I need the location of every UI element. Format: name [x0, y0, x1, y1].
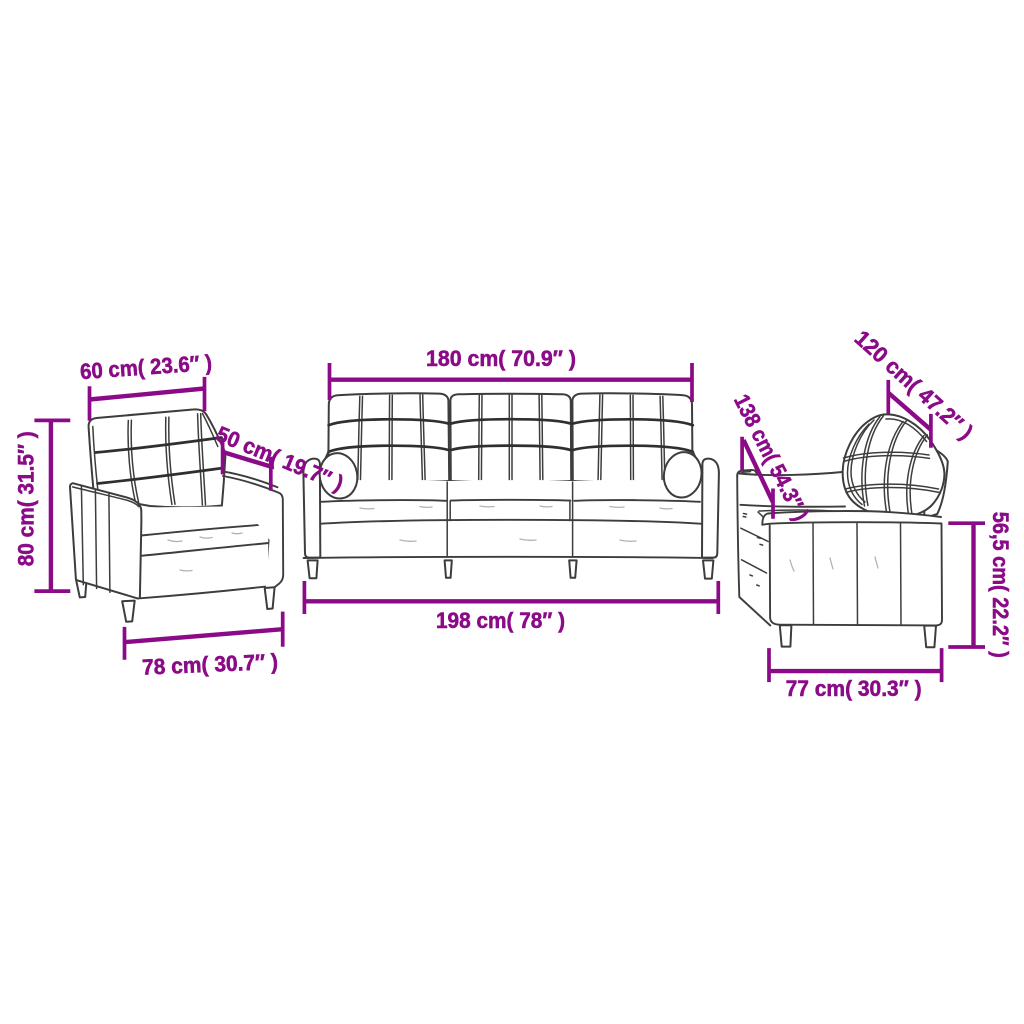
svg-text:56,5 cm( 22.2″ ): 56,5 cm( 22.2″ ): [988, 512, 1013, 658]
svg-text:77 cm( 30.3″ ): 77 cm( 30.3″ ): [786, 676, 922, 701]
svg-text:180 cm( 70.9″ ): 180 cm( 70.9″ ): [426, 346, 576, 371]
svg-text:80 cm( 31.5″ ): 80 cm( 31.5″ ): [13, 431, 38, 566]
svg-text:198 cm( 78″ ): 198 cm( 78″ ): [436, 608, 565, 633]
